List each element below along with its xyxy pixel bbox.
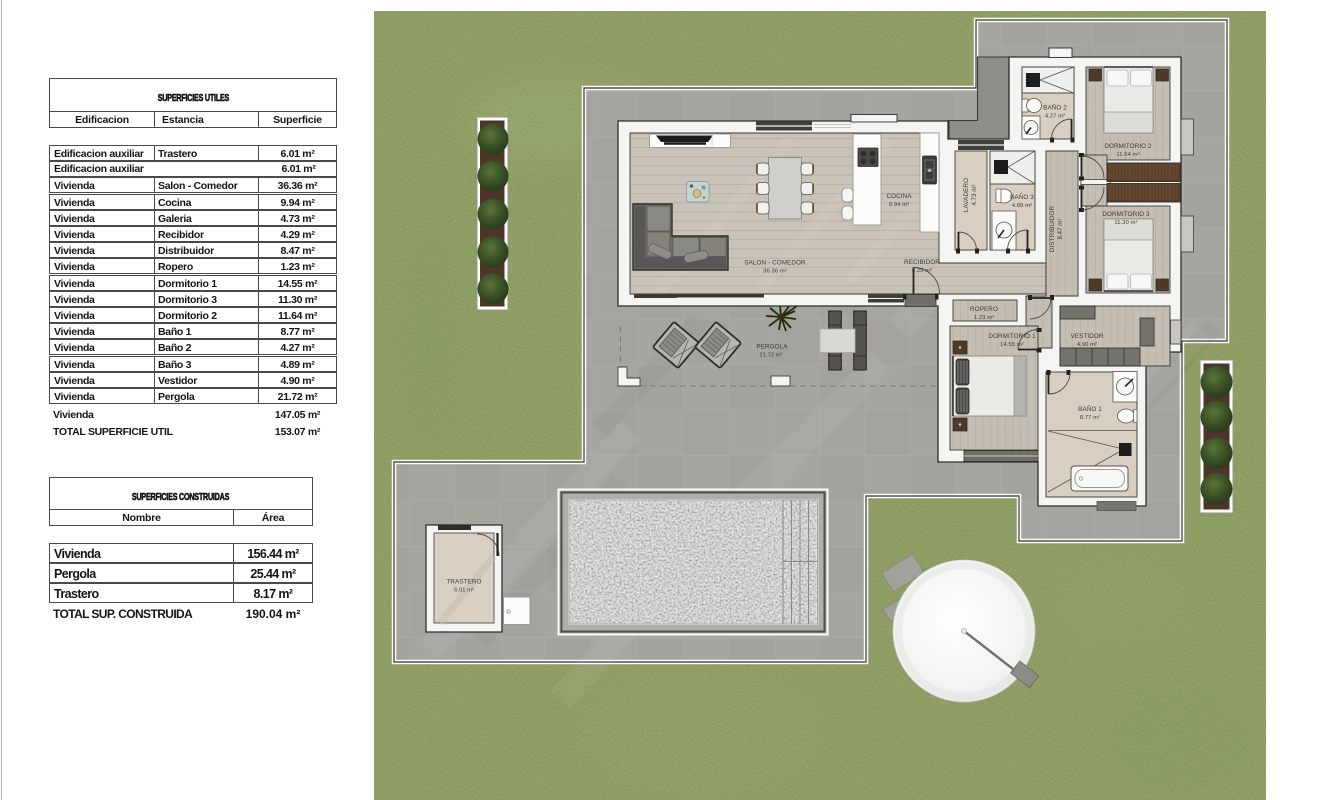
svg-text:1.23 m²: 1.23 m²	[974, 315, 994, 321]
svg-text:DORMITORIO 1: DORMITORIO 1	[988, 333, 1036, 340]
svg-text:4.89 m²: 4.89 m²	[1012, 203, 1032, 209]
svg-text:DISTRIBUIDOR: DISTRIBUIDOR	[1049, 205, 1056, 252]
svg-text:SALON - COMEDOR: SALON - COMEDOR	[744, 260, 806, 267]
svg-text:14.55 m²: 14.55 m²	[1000, 342, 1024, 348]
svg-text:8.77 m²: 8.77 m²	[1080, 415, 1100, 421]
svg-text:COCINA: COCINA	[886, 193, 912, 200]
svg-text:4.73 m²: 4.73 m²	[972, 184, 978, 205]
svg-text:TRASTERO: TRASTERO	[446, 579, 481, 586]
svg-text:4.29 m²: 4.29 m²	[912, 268, 932, 274]
svg-text:DORMITORIO 2: DORMITORIO 2	[1104, 143, 1152, 150]
svg-text:11.30 m²: 11.30 m²	[1114, 220, 1137, 226]
svg-text:BAÑO 1: BAÑO 1	[1078, 404, 1102, 413]
svg-text:ROPERO: ROPERO	[970, 306, 998, 313]
svg-text:RECIBIDOR: RECIBIDOR	[904, 259, 940, 266]
svg-text:8.47 m²: 8.47 m²	[1058, 218, 1064, 239]
svg-text:LAVADERO: LAVADERO	[963, 178, 970, 212]
svg-text:6.01 m²: 6.01 m²	[454, 588, 474, 594]
svg-text:11.64 m²: 11.64 m²	[1116, 152, 1139, 158]
svg-text:DORMITORIO 3: DORMITORIO 3	[1102, 211, 1150, 218]
svg-text:4.27 m²: 4.27 m²	[1045, 114, 1065, 120]
svg-text:VESTIDOR: VESTIDOR	[1071, 333, 1104, 340]
svg-text:36.36 m²: 36.36 m²	[763, 269, 787, 275]
svg-text:21.72 m²: 21.72 m²	[760, 353, 783, 359]
svg-text:PERGOLA: PERGOLA	[756, 344, 788, 351]
svg-text:BAÑO 3: BAÑO 3	[1010, 192, 1034, 201]
svg-text:9.94 m²: 9.94 m²	[889, 202, 909, 208]
svg-text:4.90 m²: 4.90 m²	[1077, 342, 1097, 348]
svg-text:BAÑO 2: BAÑO 2	[1043, 103, 1067, 112]
